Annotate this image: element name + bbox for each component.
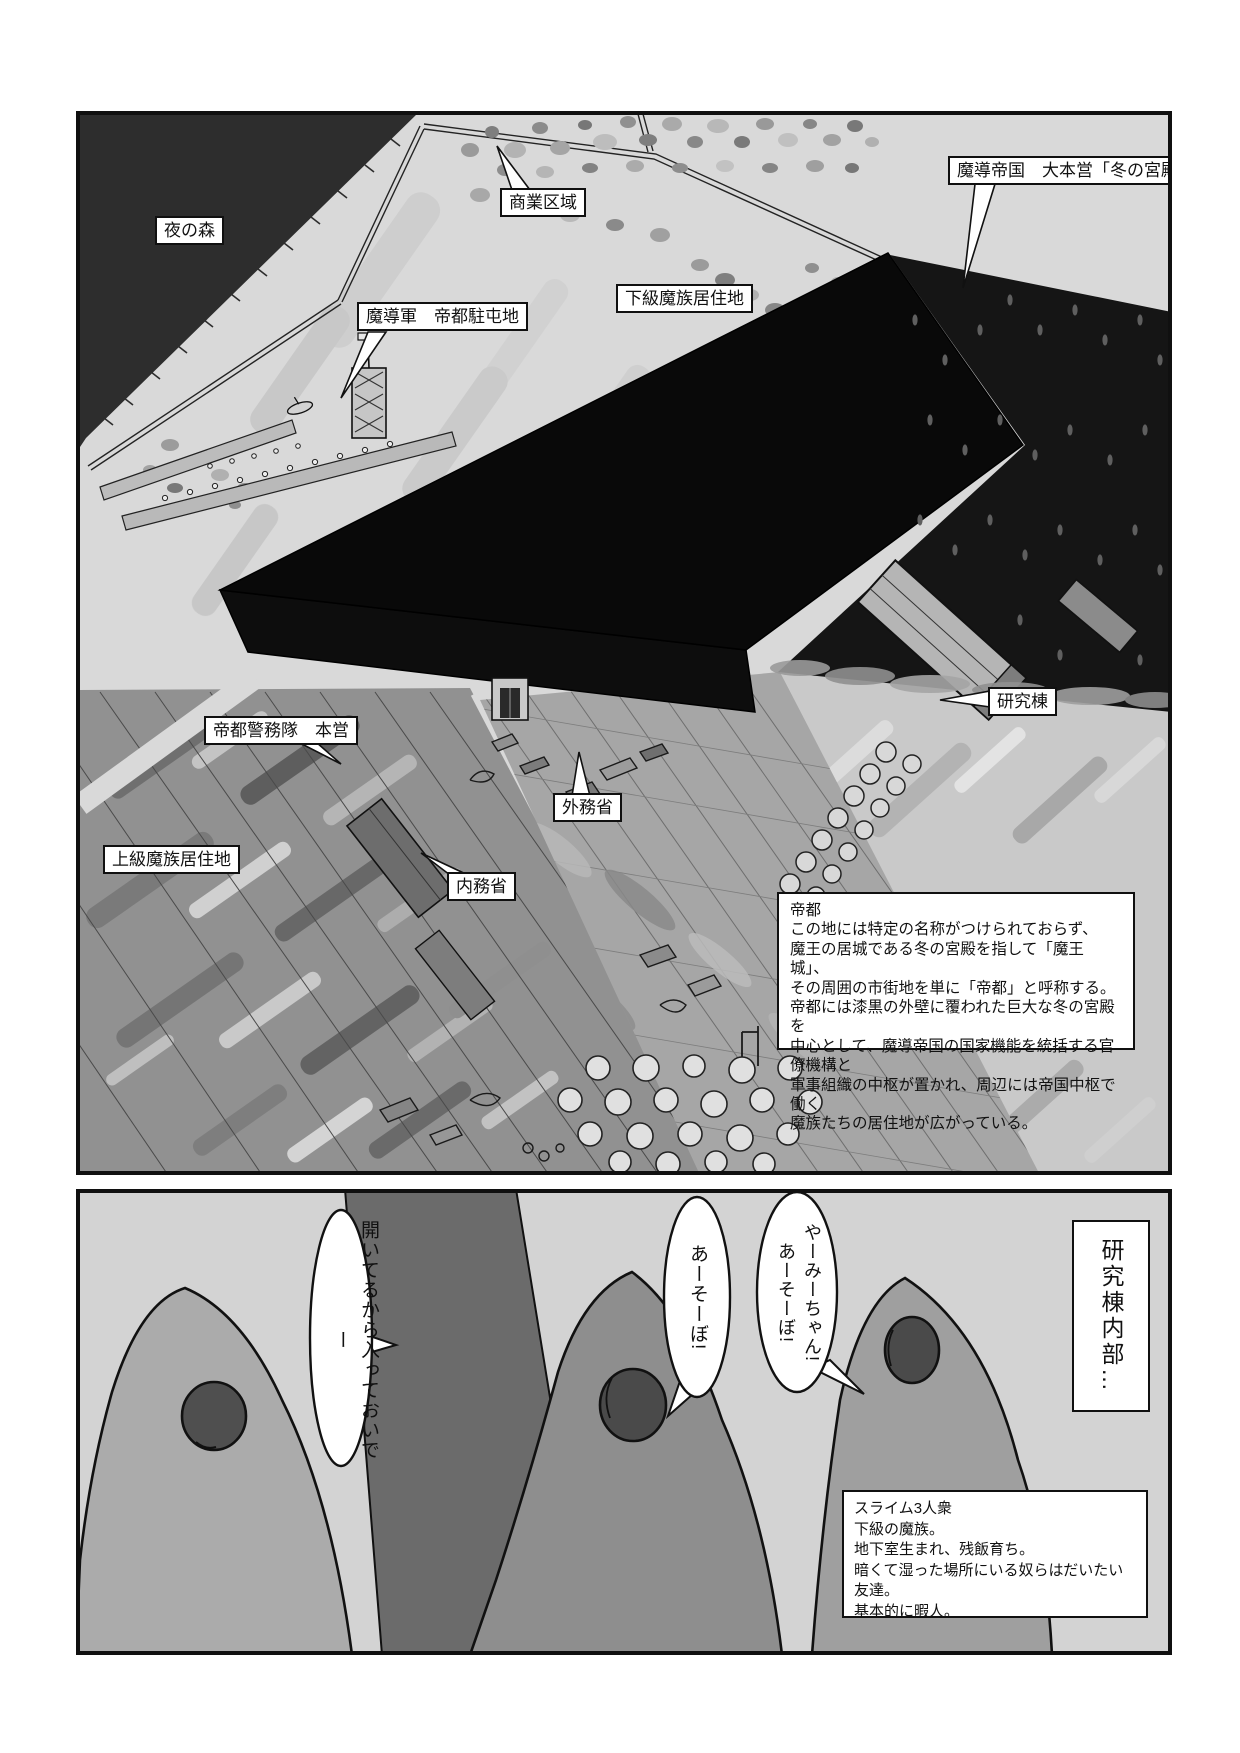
capital-info-title: 帝都: [790, 901, 1122, 920]
gate-tower: [352, 368, 386, 438]
capital-info-box: 帝都 この地には特定の名称がつけられておらず、 魔王の居城である冬の宮殿を指して…: [777, 892, 1135, 1050]
panel-interior: やーみーちゃん! あーそーぼ! あーそーぼ! 開いてるから入っておいでー 研究棟…: [76, 1189, 1172, 1655]
palace-gate: [492, 678, 528, 720]
slime-middle-eye: [600, 1369, 666, 1441]
map-label-research-building: 研究棟: [988, 687, 1057, 716]
slime-trio-info-box: スライム3人衆 下級の魔族。 地下室生まれ、残飯育ち。 暗くて湿った場所にいる奴…: [842, 1490, 1148, 1618]
map-label-army-garrison: 魔導軍 帝都駐屯地: [357, 302, 528, 331]
map-label-night-forest: 夜の森: [155, 216, 224, 245]
panel-map: 夜の森 商業区域 魔導帝国 大本営「冬の宮殿」 魔導軍 帝都駐屯地 下級魔族居住…: [76, 111, 1172, 1175]
slime-right-eye: [885, 1317, 939, 1383]
map-label-police-hq: 帝都警務隊 本営: [204, 716, 358, 745]
slime-left-eye: [182, 1382, 246, 1450]
scene-caption-box: 研究棟内部…: [1072, 1220, 1150, 1412]
bubble-text-yami-chan: やーみーちゃん! あーそーぼ!: [773, 1203, 825, 1383]
bubble-text-come-in: 開いてるから入っておいでー: [328, 1220, 382, 1460]
map-label-interior-ministry: 内務省: [447, 872, 516, 901]
map-label-upper-demon-residence: 上級魔族居住地: [103, 845, 240, 874]
map-label-imperial-hq: 魔導帝国 大本営「冬の宮殿」: [948, 156, 1172, 185]
map-label-lower-demon-residence: 下級魔族居住地: [616, 284, 753, 313]
manga-page: 夜の森 商業区域 魔導帝国 大本営「冬の宮殿」 魔導軍 帝都駐屯地 下級魔族居住…: [0, 0, 1240, 1753]
scene-caption: 研究棟内部…: [1094, 1238, 1128, 1394]
map-label-commercial-district: 商業区域: [500, 188, 586, 217]
map-label-foreign-ministry: 外務省: [553, 793, 622, 822]
capital-info-body: この地には特定の名称がつけられておらず、 魔王の居城である冬の宮殿を指して「魔王…: [790, 920, 1122, 1133]
bubble-text-asobo: あーそーぼ!: [684, 1215, 711, 1380]
